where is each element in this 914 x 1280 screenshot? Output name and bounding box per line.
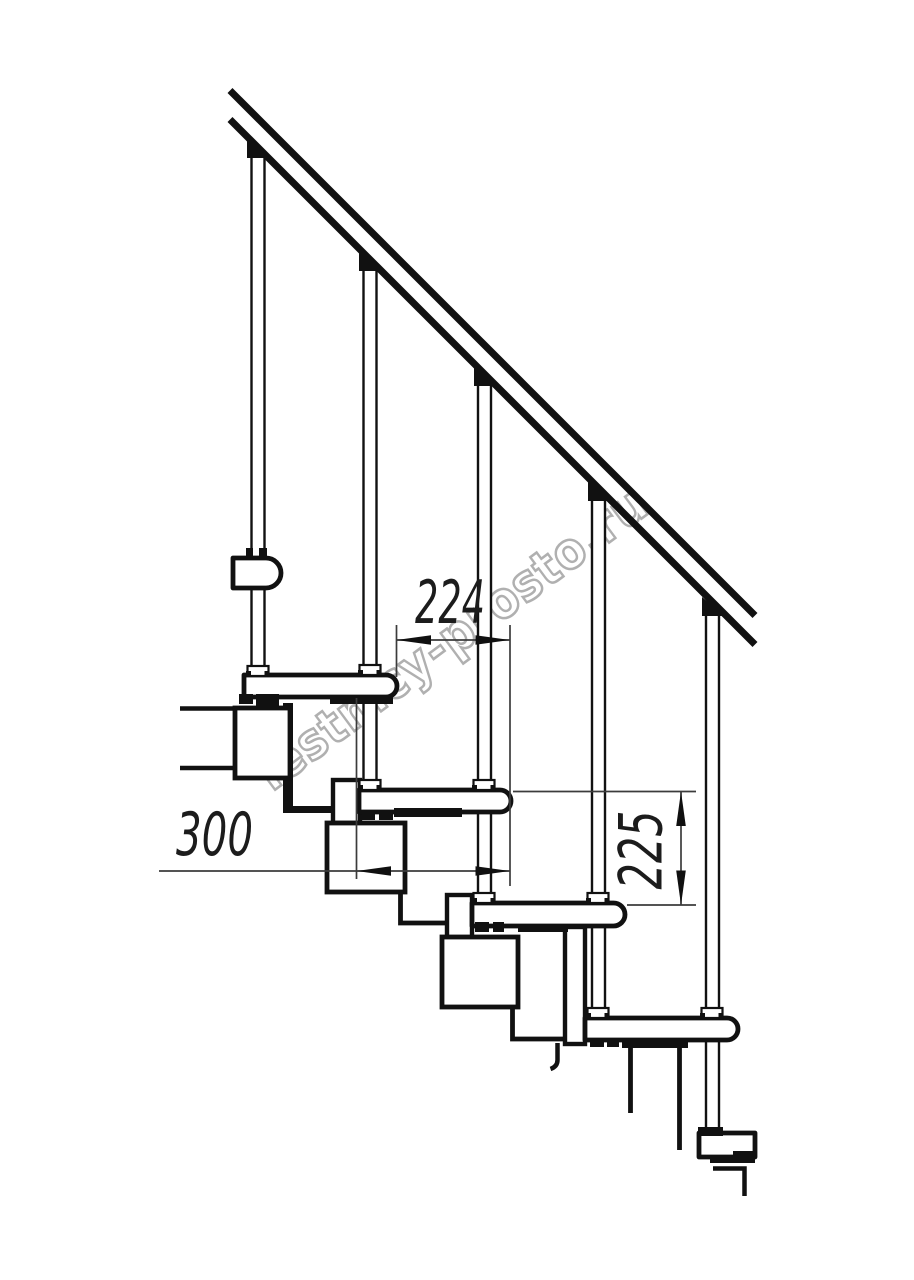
tread-5 (585, 1018, 738, 1040)
technical-drawing: lestnicy-prosto.ru (0, 0, 914, 1280)
staircase-drawing-canvas: lestnicy-prosto.ru (0, 0, 914, 1280)
nub (377, 670, 382, 676)
nub (472, 898, 477, 904)
nub (472, 785, 477, 791)
handrail (230, 91, 755, 645)
handrail-bottom-line (230, 120, 755, 645)
treads (233, 558, 755, 1157)
clamp (590, 1038, 604, 1047)
nub (700, 1013, 705, 1019)
nub (586, 898, 591, 904)
clamp (710, 1155, 733, 1163)
dimension-label-224: 224 (415, 568, 485, 638)
tread-2 (244, 675, 397, 697)
nub (246, 548, 253, 558)
clamp (379, 810, 393, 820)
baluster-5 (706, 612, 719, 1130)
nub (377, 785, 382, 791)
baluster-4 (592, 497, 605, 1015)
clamp (518, 924, 568, 932)
clamp (239, 694, 253, 704)
handrail-top-line (230, 91, 755, 616)
tread5-back-bracket (565, 927, 585, 1044)
module3-box (442, 937, 518, 1007)
nub (586, 1013, 591, 1019)
module4-cut-tail (551, 1043, 558, 1069)
nub (259, 548, 267, 558)
tread4-back-bracket (447, 895, 472, 938)
nub (605, 898, 610, 904)
module1-connector (283, 806, 333, 813)
module2-box (327, 823, 405, 892)
clamp (394, 808, 462, 817)
dimension-label-300: 300 (176, 800, 253, 870)
nub (265, 671, 270, 677)
clamp (256, 694, 279, 706)
baluster-1 (252, 154, 265, 672)
clamp (362, 810, 375, 820)
arrowhead-right (476, 866, 511, 876)
baluster5-foot (698, 1127, 723, 1136)
module1-box (235, 708, 290, 778)
nub (719, 1013, 724, 1019)
tread-upper-cut (233, 558, 281, 588)
nub (605, 1013, 610, 1019)
nub (246, 671, 251, 677)
arrowhead-up (676, 792, 686, 827)
dimension-label-225: 225 (607, 811, 677, 890)
clamp (733, 1151, 755, 1163)
clamp (493, 922, 504, 932)
clamp (622, 1039, 688, 1048)
module3-leg (513, 1003, 567, 1039)
clamp (330, 695, 393, 704)
clamp (475, 922, 489, 932)
tread6-cut-hook (713, 1169, 745, 1197)
arrowhead-down (676, 871, 686, 906)
nub (491, 785, 496, 791)
nub (358, 785, 363, 791)
nub (491, 898, 496, 904)
clamp (607, 1038, 619, 1047)
nub (358, 670, 363, 676)
baluster-2 (364, 267, 377, 787)
module2-leg (401, 888, 450, 935)
